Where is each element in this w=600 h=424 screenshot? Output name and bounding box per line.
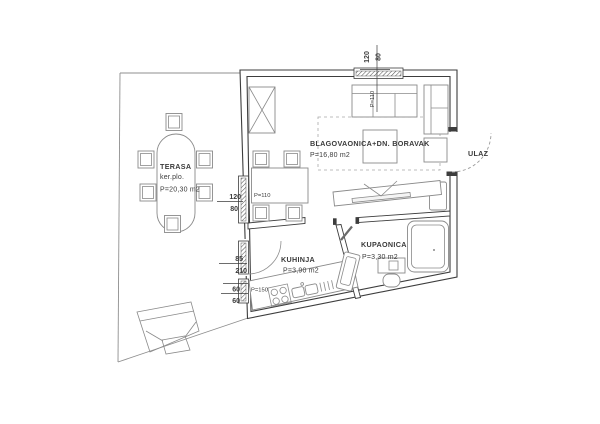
sofa [352,85,448,134]
kitchen-name: KUHINJA [281,255,315,264]
door-jamb [333,218,337,225]
dim-label: 120 [364,51,371,63]
entrance-label: ULAZ [468,149,489,158]
dining-chair [253,151,269,167]
living-room-area: P=16,80 m2 [310,152,350,159]
kitchen-area: P=3,90 m2 [283,268,319,275]
wardrobe [249,87,275,133]
dining-chair [284,151,300,167]
terrace-finish: ker.plo. [160,174,184,181]
terrace-chair [197,151,213,168]
terrace-chair [138,151,154,168]
dim-label: 85 [235,256,243,263]
terrace-area: P=20,30 m2 [160,187,200,194]
dim-label: 210 [235,268,247,275]
dining-set [252,151,309,221]
dining-chair [286,205,302,221]
floor-plan-drawing: 120 80 P=110 120 80 P=110 85 210 60 60 P… [0,0,600,424]
parapet-label: P=150 [251,288,268,294]
dim-label: 120 [229,194,241,201]
dim-label: 60 [232,298,240,305]
terrace-name: TERASA [160,162,191,171]
terrace-stairs [137,302,199,354]
dim-label: 80 [230,206,238,213]
dim-label: 80 [375,53,382,61]
bathroom-name: KUPAONICA [361,240,407,249]
terrace-chair [166,114,182,131]
terrace-chair [165,216,181,233]
terrace-furniture [137,114,213,355]
parapet-label: P=110 [254,193,271,199]
floor-plan-canvas: 120 80 P=110 120 80 P=110 85 210 60 60 P… [0,0,600,424]
tv-sideboard [333,181,442,207]
parapet-label: P=110 [370,91,376,108]
living-room-name: BLAGOVAONICA+DN. BORAVAK [310,139,430,148]
shower [408,221,449,272]
dining-chair [253,205,269,221]
door-jamb [356,217,360,224]
window-small [239,279,249,303]
dim-label: 60 [232,287,240,294]
bathroom-area: P=3,30 m2 [362,254,398,261]
terrace-chair [140,184,156,201]
terrace-door-swing-arc [248,241,281,274]
